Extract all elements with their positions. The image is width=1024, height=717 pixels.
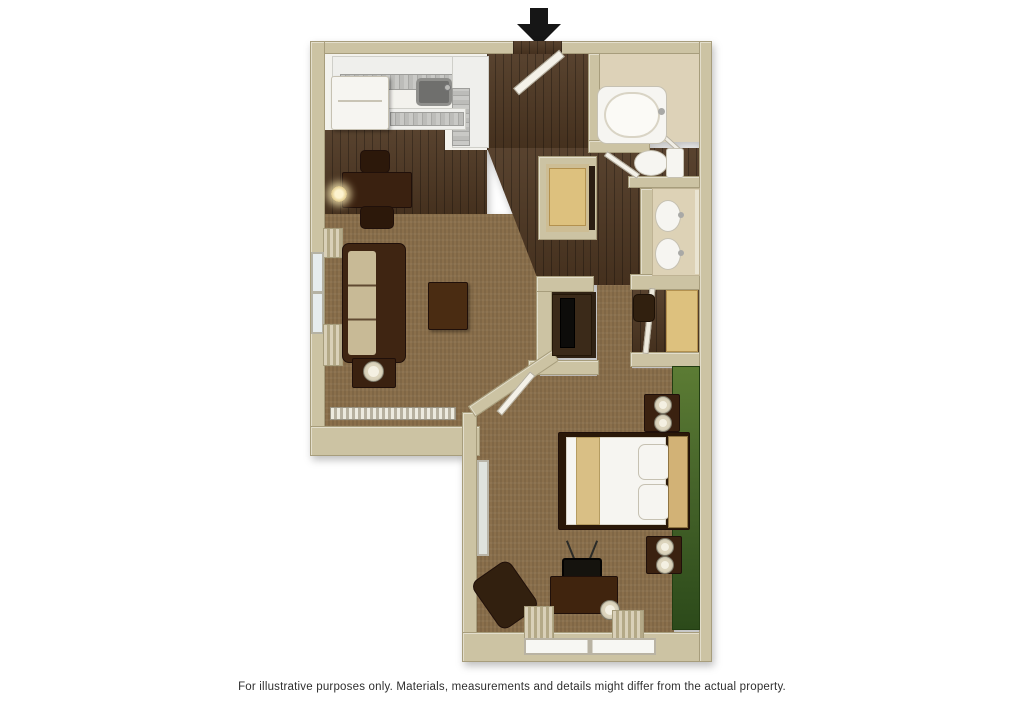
vanity-faucet-1-icon [678, 212, 684, 218]
kitchen-sink [416, 78, 452, 106]
wall-closet-top [630, 274, 700, 290]
coffee-table [428, 282, 468, 330]
linen-closet-shelves [549, 168, 586, 226]
baseboard-heater [330, 407, 456, 420]
wall-sconce-icon [331, 186, 347, 202]
vanity-sink-2 [655, 238, 681, 270]
refrigerator-handle [338, 100, 382, 102]
floorplan-page: For illustrative purposes only. Material… [0, 0, 1024, 717]
standing-mirror [477, 460, 489, 556]
disclaimer-text: For illustrative purposes only. Material… [0, 681, 1024, 693]
dining-chair-north [360, 150, 390, 173]
tv-screen-niche [560, 298, 575, 348]
bedroom-window [524, 638, 656, 655]
wall-right [699, 41, 712, 662]
bathtub-basin [604, 92, 660, 138]
closet-wardrobe [666, 290, 698, 352]
kitchen-sink-faucet-icon [444, 84, 451, 91]
wall-top [310, 41, 712, 54]
linen-closet-opening [589, 166, 595, 230]
wall-niche-top [536, 276, 594, 292]
curtain-living-upper [323, 228, 343, 258]
refrigerator [331, 76, 389, 130]
vanity-mirror [695, 190, 699, 274]
nightstand-south-lamp-1 [656, 538, 674, 556]
curtain-living-lower [323, 324, 343, 366]
wall-bottom-living [310, 426, 480, 456]
nightstand-south-lamp-2 [656, 556, 674, 574]
bed-runner [576, 437, 600, 525]
dining-table [342, 172, 412, 208]
bed-pillow-1 [638, 444, 670, 480]
living-room-window-mullion [312, 291, 323, 294]
bed-pillow-2 [638, 484, 670, 520]
nightstand-north-lamp-1 [654, 396, 672, 414]
dining-chair-south [360, 206, 394, 229]
toilet-tank [666, 148, 684, 178]
floorplan-canvas [0, 0, 1024, 717]
end-table-lamp [363, 361, 384, 382]
wall-toilet-vanity [628, 176, 700, 188]
nightstand-north-lamp-2 [654, 414, 672, 432]
bathtub-faucet-icon [658, 108, 665, 115]
toilet-bowl [634, 150, 668, 176]
wall-closet-bottom [630, 352, 700, 367]
kitchen-cabinet-face-lower [390, 112, 464, 126]
bed-headboard [668, 436, 688, 528]
hanging-clothes [633, 294, 655, 322]
vanity-faucet-2-icon [678, 250, 684, 256]
vanity-sink-1 [655, 200, 681, 232]
wall-left-bedroom [462, 412, 477, 662]
sofa-cushions [348, 251, 376, 355]
